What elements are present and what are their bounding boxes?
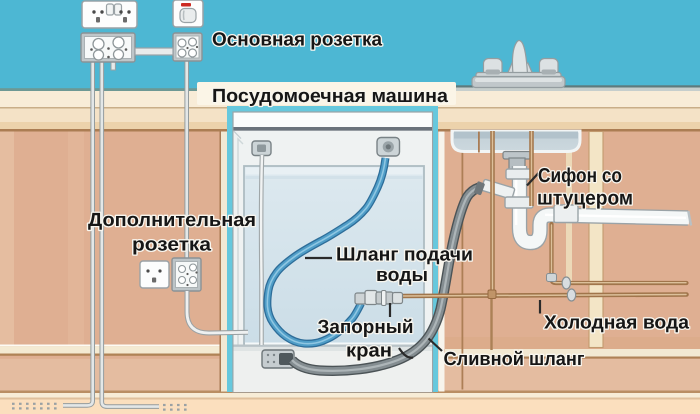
svg-text:розетка: розетка bbox=[132, 235, 211, 256]
svg-text:штуцером: штуцером bbox=[537, 187, 633, 209]
svg-text:Шланг подачи: Шланг подачи bbox=[336, 244, 473, 265]
svg-text:Холодная вода: Холодная вода bbox=[544, 313, 689, 334]
svg-text:Основная розетка: Основная розетка bbox=[212, 30, 382, 51]
svg-text:Сливной шланг: Сливной шланг bbox=[444, 349, 585, 370]
svg-text:Посудомоечная машина: Посудомоечная машина bbox=[212, 86, 448, 107]
svg-text:Дополнительная: Дополнительная bbox=[88, 210, 256, 231]
svg-text:Запорный: Запорный bbox=[318, 317, 414, 338]
svg-text:кран: кран bbox=[346, 341, 392, 362]
svg-text:воды: воды bbox=[376, 265, 428, 286]
svg-text:Сифон со: Сифон со bbox=[538, 165, 622, 187]
